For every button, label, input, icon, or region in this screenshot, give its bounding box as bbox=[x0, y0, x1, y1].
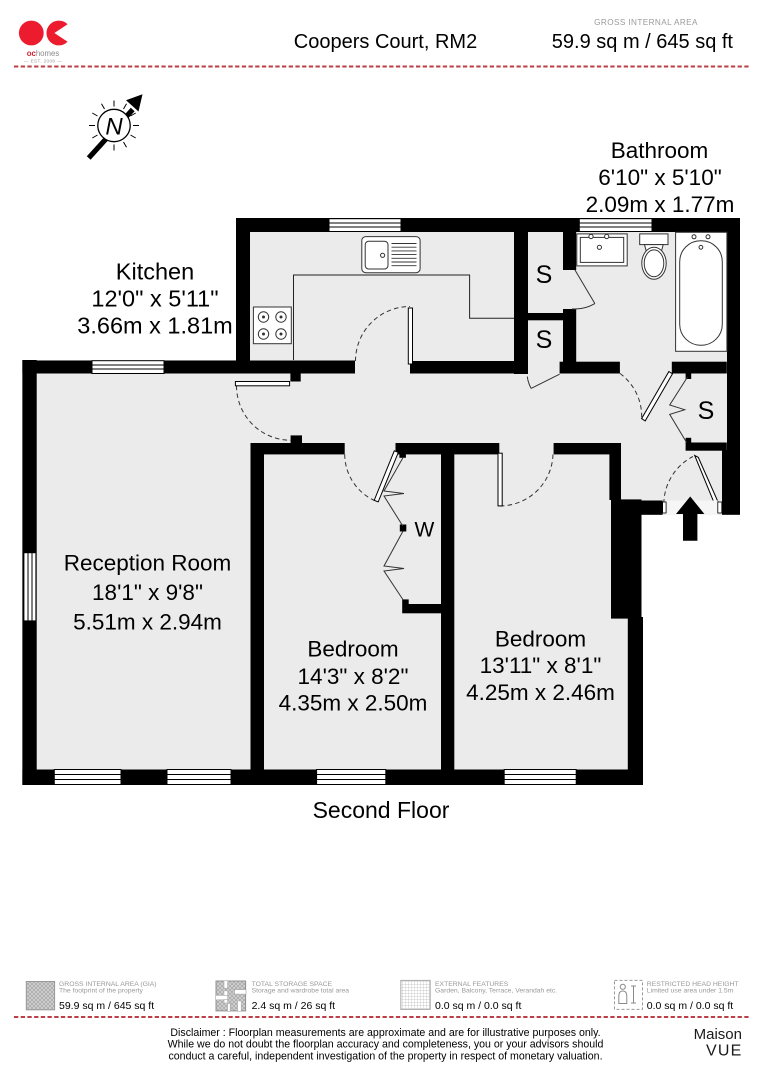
svg-text:Maison: Maison bbox=[694, 1026, 742, 1043]
svg-text:0.0 sq m / 0.0 sq ft: 0.0 sq m / 0.0 sq ft bbox=[435, 1000, 521, 1012]
svg-text:2.4 sq m / 26 sq ft: 2.4 sq m / 26 sq ft bbox=[252, 1000, 336, 1012]
svg-text:W: W bbox=[414, 519, 434, 542]
svg-text:Bedroom: Bedroom bbox=[495, 627, 586, 652]
svg-text:Coopers Court, RM2: Coopers Court, RM2 bbox=[294, 31, 477, 53]
svg-text:N: N bbox=[105, 114, 123, 141]
svg-text:4.35m x 2.50m: 4.35m x 2.50m bbox=[279, 691, 428, 716]
svg-text:3.66m x 1.81m: 3.66m x 1.81m bbox=[77, 313, 232, 339]
svg-text:S: S bbox=[536, 326, 553, 354]
svg-text:59.9 sq m / 645 sq ft: 59.9 sq m / 645 sq ft bbox=[59, 1000, 154, 1012]
svg-text:Bedroom: Bedroom bbox=[307, 637, 398, 662]
svg-text:12'0" x 5'11": 12'0" x 5'11" bbox=[91, 286, 218, 312]
svg-text:conduct a careful, independent: conduct a careful, independent investiga… bbox=[168, 1050, 602, 1062]
svg-text:Bathroom: Bathroom bbox=[611, 138, 709, 163]
svg-text:VUE: VUE bbox=[706, 1043, 743, 1060]
svg-text:Disclaimer : Floorplan measure: Disclaimer : Floorplan measurements are … bbox=[170, 1027, 600, 1039]
svg-text:Kitchen: Kitchen bbox=[116, 259, 194, 285]
svg-text:GROSS INTERNAL AREA: GROSS INTERNAL AREA bbox=[594, 18, 698, 27]
svg-text:Storage and wardrobe total are: Storage and wardrobe total area bbox=[252, 988, 350, 995]
svg-text:13'11" x 8'1": 13'11" x 8'1" bbox=[480, 653, 602, 678]
svg-text:While we do not doubt the floo: While we do not doubt the floorplan accu… bbox=[168, 1039, 604, 1051]
svg-text:5.51m x 2.94m: 5.51m x 2.94m bbox=[73, 610, 222, 635]
svg-text:6'10" x 5'10": 6'10" x 5'10" bbox=[598, 165, 721, 190]
svg-text:2.09m x 1.77m: 2.09m x 1.77m bbox=[586, 192, 735, 217]
svg-text:The footprint of the property: The footprint of the property bbox=[59, 988, 143, 995]
svg-text:Garden, Balcony, Terrace, Vera: Garden, Balcony, Terrace, Verandah etc. bbox=[435, 988, 557, 995]
svg-text:4.25m x 2.46m: 4.25m x 2.46m bbox=[466, 680, 615, 705]
svg-text:14'3" x 8'2": 14'3" x 8'2" bbox=[298, 664, 409, 689]
svg-text:Second Floor: Second Floor bbox=[313, 797, 450, 823]
svg-text:S: S bbox=[536, 261, 553, 289]
svg-text:— EST. 2008 —: — EST. 2008 — bbox=[24, 59, 62, 64]
svg-text:S: S bbox=[698, 397, 715, 425]
svg-text:59.9 sq m / 645 sq ft: 59.9 sq m / 645 sq ft bbox=[552, 31, 734, 53]
svg-text:ochomes: ochomes bbox=[27, 49, 60, 58]
svg-text:18'1" x 9'8": 18'1" x 9'8" bbox=[92, 580, 203, 605]
svg-text:0.0 sq m / 0.0 sq ft: 0.0 sq m / 0.0 sq ft bbox=[647, 1000, 733, 1012]
svg-text:Limited use area under 1.5m: Limited use area under 1.5m bbox=[647, 988, 734, 995]
svg-text:Reception Room: Reception Room bbox=[64, 551, 232, 576]
